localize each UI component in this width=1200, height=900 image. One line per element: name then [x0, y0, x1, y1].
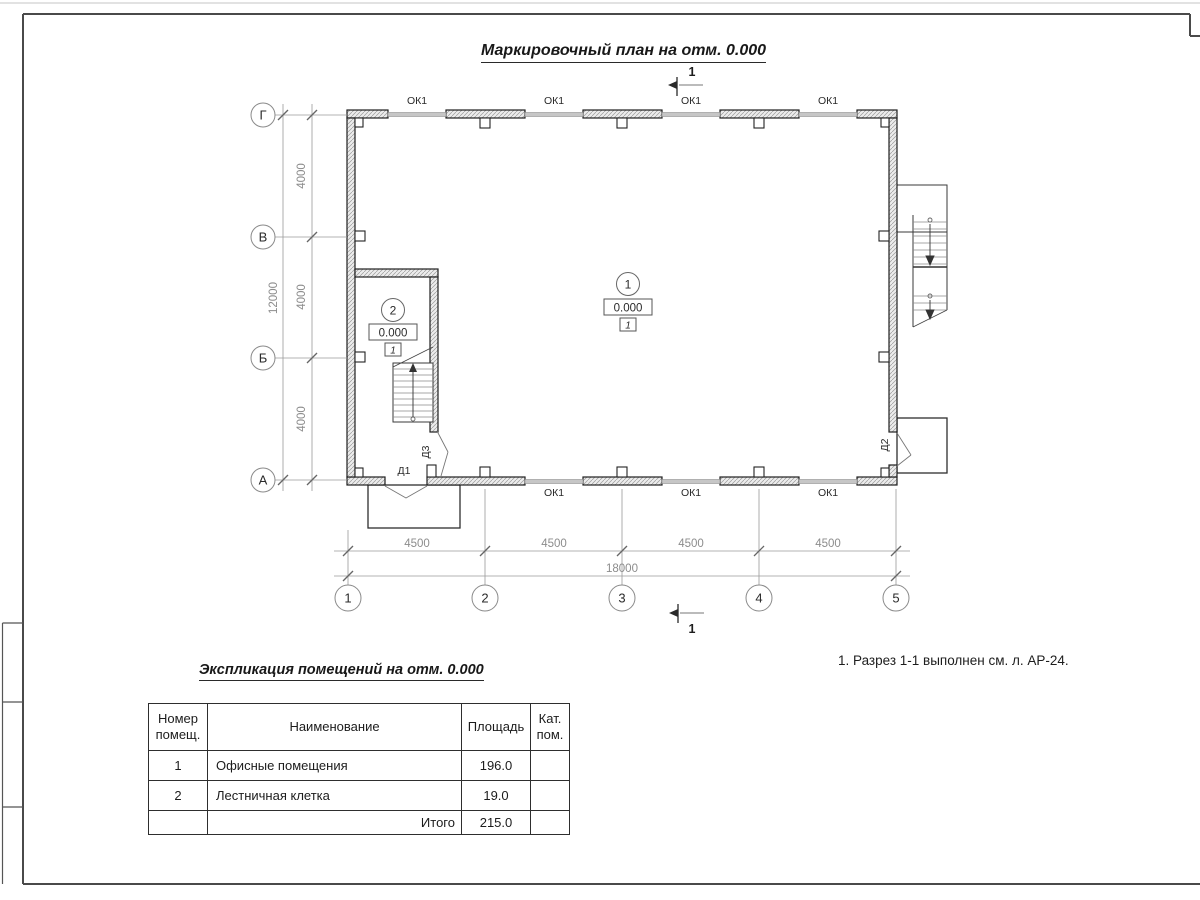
col-header-area: Площадь	[462, 704, 531, 751]
door-d3-label: Д3	[420, 445, 432, 458]
window-label: ОК1	[544, 487, 564, 499]
col-header-category: Кат. пом.	[531, 704, 570, 751]
window-label: ОК1	[681, 487, 701, 499]
col-header-number: Номер помещ.	[149, 704, 208, 751]
section-label: 1	[689, 65, 696, 79]
section-label: 1	[689, 622, 696, 636]
axis-row-label: В	[259, 230, 268, 245]
internal-stair	[393, 347, 433, 422]
room-number: 1	[149, 751, 208, 781]
axis-col-label: 3	[618, 591, 625, 606]
axis-col-label: 2	[481, 591, 488, 606]
room-area: 196.0	[462, 751, 531, 781]
external-stair	[897, 185, 947, 327]
door-d2-label: Д2	[879, 438, 891, 451]
stairwell-wall-horizontal	[355, 269, 438, 277]
room-area: 19.0	[462, 781, 531, 811]
window-label: ОК1	[544, 95, 564, 107]
axis-row-label: А	[259, 473, 268, 488]
room-tag-stairwell: 2 0.000 1	[369, 299, 417, 357]
schedule-total-row: Итого 215.0	[149, 811, 570, 835]
door-labels: Д1 Д3 Д2	[398, 438, 891, 477]
room-elevation: 0.000	[614, 303, 643, 315]
room-schedule: Номер помещ. Наименование Площадь Кат. п…	[148, 703, 570, 835]
axis-col-label: 1	[344, 591, 351, 606]
stair-direction-arrows	[926, 218, 934, 319]
dim-row-segment: 4000	[296, 163, 308, 189]
section-note: 1. Разрез 1-1 выполнен см. л. АР-24.	[838, 653, 1069, 668]
room-number: 2	[390, 304, 397, 318]
plan-title: Маркировочный план на отм. 0.000	[481, 42, 766, 63]
dim-col-segment: 4500	[815, 538, 841, 550]
dim-col-segment: 4500	[541, 538, 567, 550]
walls	[347, 110, 897, 485]
door-d3-leader	[437, 431, 448, 476]
axis-col-label: 5	[892, 591, 899, 606]
room-schedule-table: Номер помещ. Наименование Площадь Кат. п…	[148, 703, 570, 835]
total-empty	[531, 811, 570, 835]
porches	[368, 418, 947, 528]
axes-left: Г В Б А 4000 4000 4000 12000	[251, 103, 347, 492]
room-category	[531, 751, 570, 781]
room-number: 2	[149, 781, 208, 811]
schedule-header-row: Номер помещ. Наименование Площадь Кат. п…	[149, 704, 570, 751]
windows	[388, 113, 857, 484]
room-name: Лестничная клетка	[208, 781, 462, 811]
schedule-row: 2 Лестничная клетка 19.0	[149, 781, 570, 811]
dim-row-segment: 4000	[296, 406, 308, 432]
room-number: 1	[625, 278, 632, 292]
axis-row-label: Г	[259, 108, 266, 123]
dim-row-segment: 4000	[296, 284, 308, 310]
frame-left-strip	[3, 623, 24, 884]
room-finish-mark: 1	[390, 346, 396, 357]
entrance-porch-bottom	[368, 485, 460, 528]
total-label: Итого	[208, 811, 462, 835]
window-label: ОК1	[407, 95, 427, 107]
room-tag-office: 1 0.000 1	[604, 273, 652, 332]
dim-col-segment: 4500	[404, 538, 430, 550]
window-labels: ОК1 ОК1 ОК1 ОК1 ОК1 ОК1 ОК1	[407, 95, 838, 499]
window-label: ОК1	[818, 487, 838, 499]
drawing-sheet: ОК1 ОК1 ОК1 ОК1 ОК1 ОК1 ОК1	[0, 0, 1200, 900]
window-label: ОК1	[681, 95, 701, 107]
total-empty	[149, 811, 208, 835]
room-finish-mark: 1	[625, 321, 631, 332]
total-area: 215.0	[462, 811, 531, 835]
dim-col-total: 18000	[606, 563, 638, 575]
axis-col-label: 4	[755, 591, 762, 606]
section-mark-top: 1	[668, 65, 703, 96]
schedule-title: Экспликация помещений на отм. 0.000	[199, 662, 484, 681]
axis-row-label: Б	[259, 351, 268, 366]
room-name: Офисные помещения	[208, 751, 462, 781]
room-category	[531, 781, 570, 811]
dim-col-segment: 4500	[678, 538, 704, 550]
dim-row-total: 12000	[268, 282, 280, 314]
section-mark-bottom: 1	[669, 604, 704, 636]
room-elevation: 0.000	[379, 328, 408, 340]
window-label: ОК1	[818, 95, 838, 107]
col-header-name: Наименование	[208, 704, 462, 751]
schedule-row: 1 Офисные помещения 196.0	[149, 751, 570, 781]
door-d1-label: Д1	[398, 465, 411, 477]
